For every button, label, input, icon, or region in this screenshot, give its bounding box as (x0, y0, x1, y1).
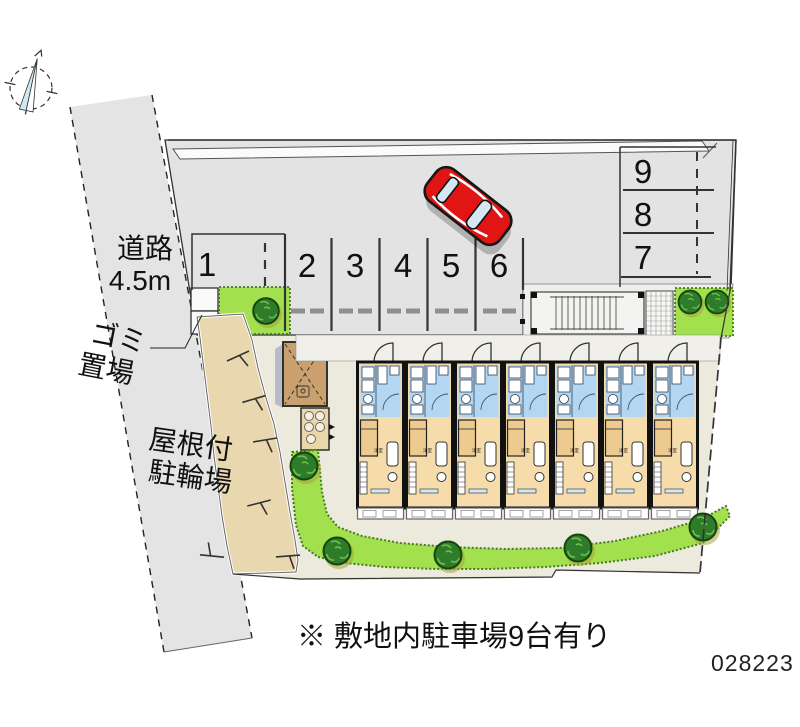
svg-text:道路: 道路 (117, 233, 173, 264)
stall-number: 3 (346, 247, 364, 284)
stall-number: 8 (634, 196, 652, 233)
building-unit (505, 343, 551, 519)
bicycle-parking-label: 屋根付 駐輪場 (143, 424, 239, 499)
building-unit (456, 343, 502, 519)
plan-number: 028223 (711, 650, 794, 676)
fence-post (520, 294, 525, 299)
compass-icon (0, 44, 66, 120)
staircase (531, 292, 644, 334)
stall-number: 2 (298, 247, 316, 284)
building-unit (358, 343, 404, 519)
stall-number: 7 (634, 239, 652, 276)
building-unit (652, 343, 698, 519)
building-row (358, 343, 698, 519)
building-unit (554, 343, 600, 519)
road-label: 道路 4.5m (109, 233, 173, 296)
stall-number: 1 (198, 246, 216, 283)
building-unit (407, 343, 453, 519)
planting-patch-right (675, 288, 733, 336)
fence-post (520, 319, 525, 324)
building-unit (603, 343, 649, 519)
svg-text:4.5m: 4.5m (109, 265, 171, 296)
stall-number: 4 (394, 247, 412, 284)
building-porch (296, 335, 720, 361)
stall-number: 9 (634, 153, 652, 190)
stall-number: 5 (442, 247, 460, 284)
site-note: ※ 敷地内駐車場9台有り (297, 620, 611, 653)
site-plan-page: 洋室 (0, 0, 800, 727)
site-plan-figure: 洋室 (0, 0, 800, 727)
north-arrow (35, 49, 43, 57)
tiled-area (646, 291, 673, 336)
